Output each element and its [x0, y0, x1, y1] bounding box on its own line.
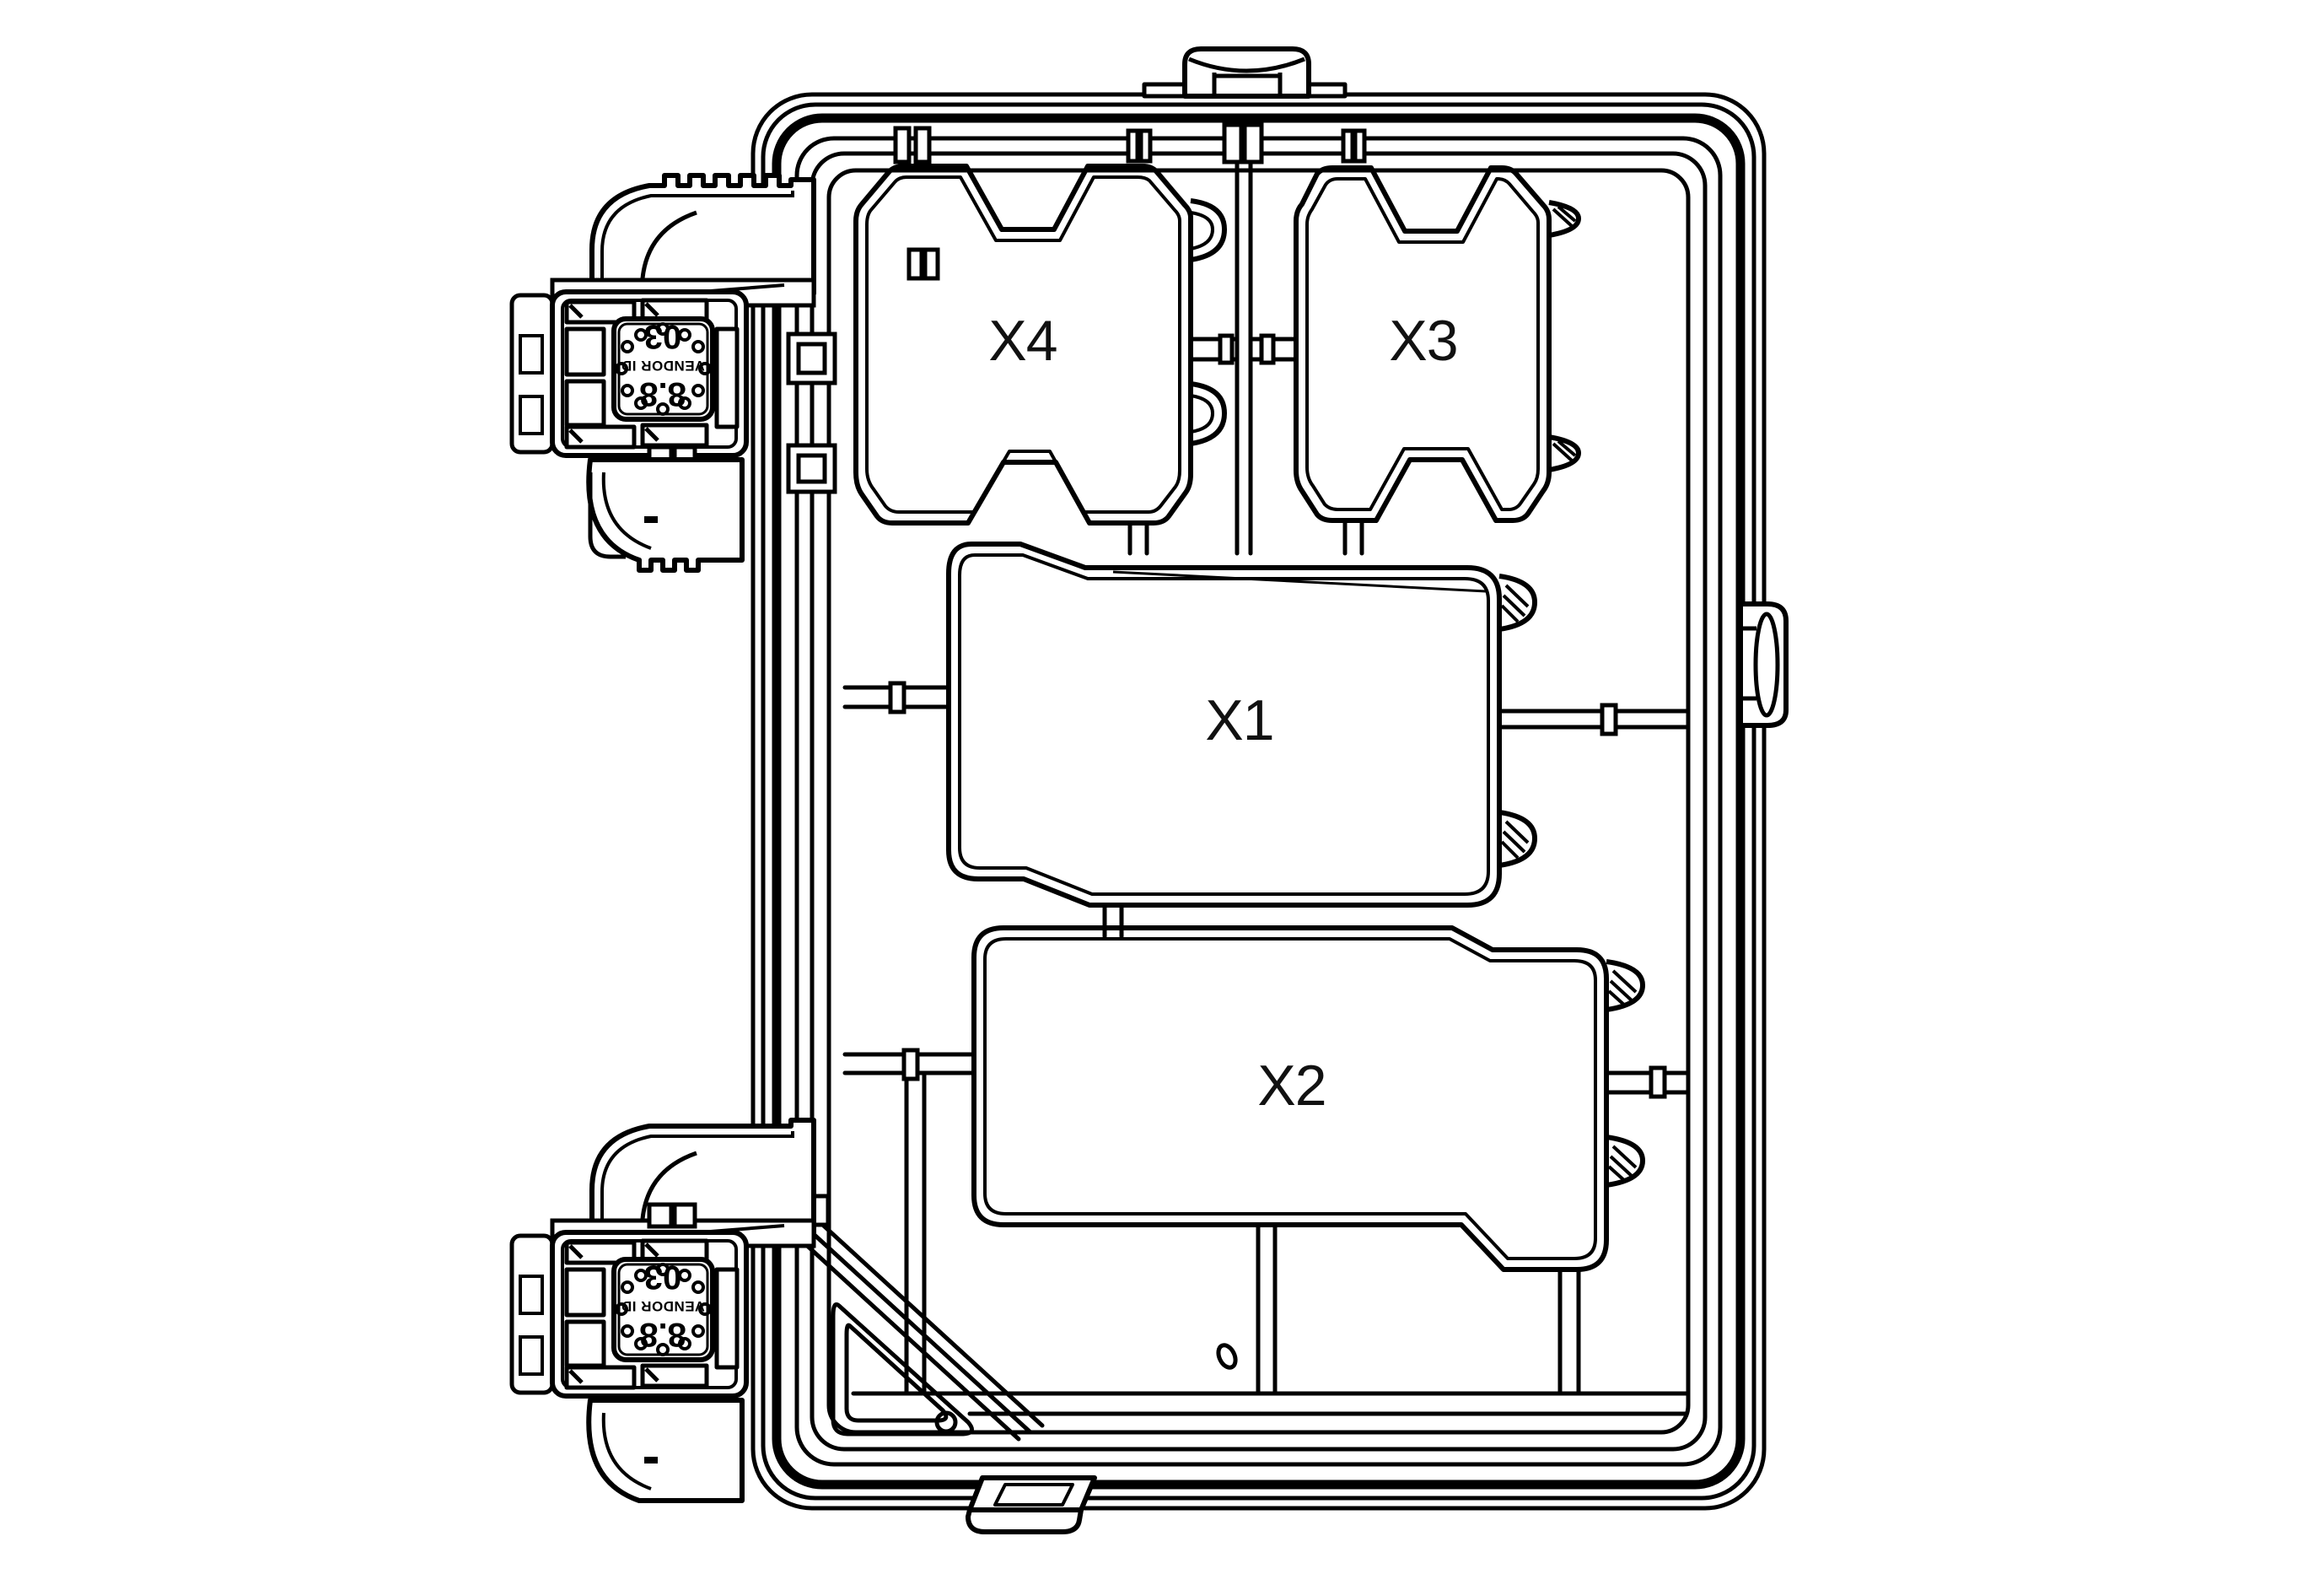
pin-face: 8.8 VENDOR ID 03 [614, 1259, 713, 1360]
gauge-marking: 8.8 [639, 1316, 686, 1353]
vendor-marking: VENDOR ID [621, 358, 705, 374]
cavity-x2-label: X2 [1257, 1054, 1326, 1118]
vendor-marking: VENDOR ID [621, 1298, 705, 1314]
bottom-mounting-tab [968, 1478, 1095, 1532]
code-marking: 03 [644, 318, 682, 355]
aux-connector-top: 8.8 VENDOR ID 03 [512, 175, 814, 570]
dome-housing [592, 175, 814, 294]
junction-box-drawing: X4 X3 X1 [0, 0, 2324, 1574]
top-mounting-tab [1144, 49, 1345, 96]
pin-face: 8.8 VENDOR ID 03 [614, 318, 713, 419]
corner-brace [784, 1211, 1239, 1439]
code-marking: 03 [644, 1259, 682, 1296]
right-mounting-tab [1740, 604, 1786, 725]
technical-drawing-page: X4 X3 X1 [0, 0, 2324, 1574]
cavity-x1-label: X1 [1205, 688, 1273, 752]
gauge-marking: 8.8 [639, 375, 686, 412]
aux-connector-bottom: 8.8 VENDOR ID 03 [512, 1120, 814, 1501]
runner-keys [784, 125, 1665, 1225]
cavity-x3-label: X3 [1389, 309, 1457, 373]
cavity-x4-label: X4 [988, 309, 1057, 373]
